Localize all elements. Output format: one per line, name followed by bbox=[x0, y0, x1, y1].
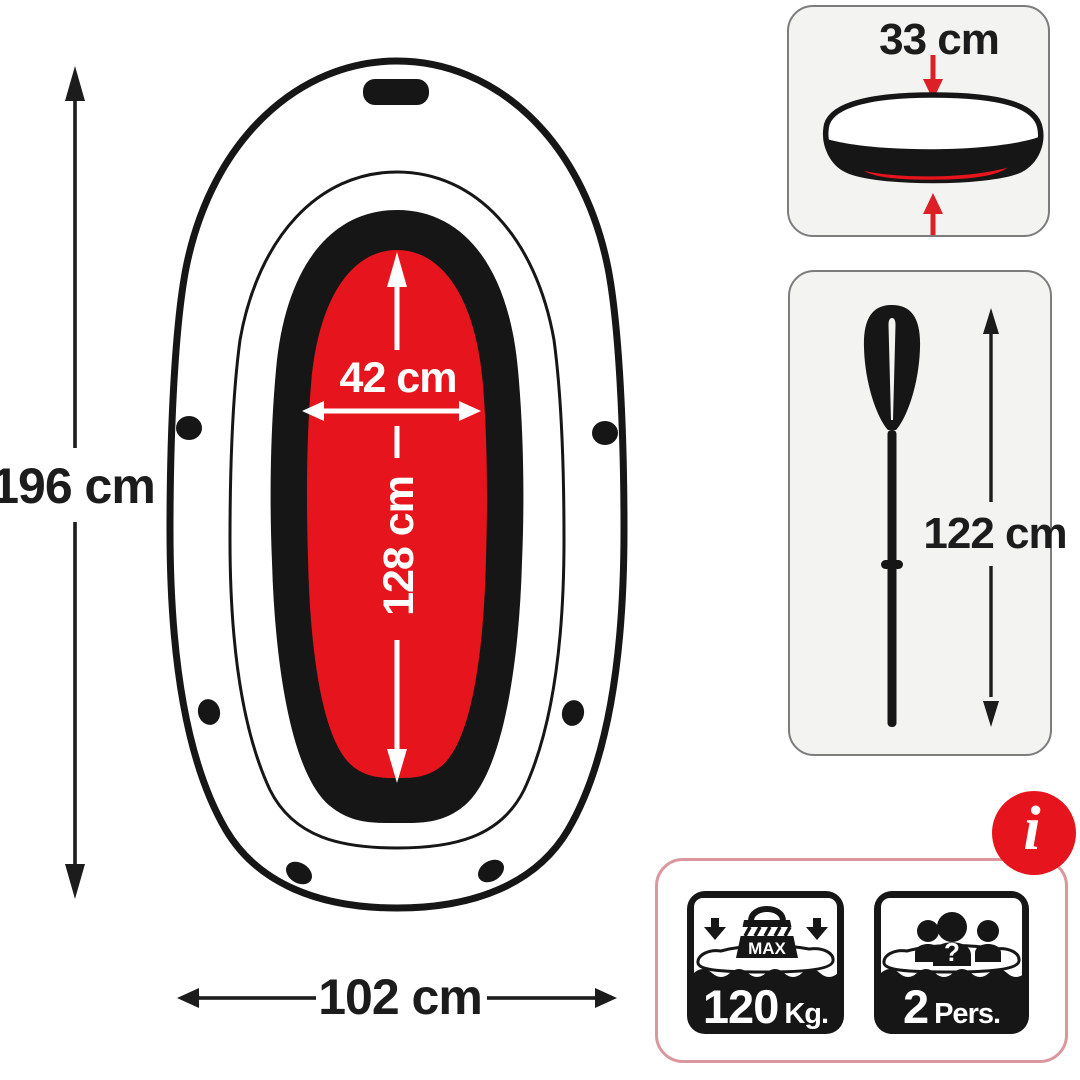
info-icon: i bbox=[1023, 798, 1040, 860]
max-weight-badge: MAX 120 Kg. bbox=[687, 891, 844, 1034]
capacity-unit: Pers. bbox=[934, 1000, 1000, 1029]
product-dimension-diagram: 196 cm 102 cm 42 cm 128 cm 33 cm bbox=[0, 0, 1080, 1080]
question-mark-label: ? bbox=[944, 937, 960, 967]
info-badge: i bbox=[992, 791, 1076, 875]
bow-handle bbox=[363, 79, 429, 105]
capacity-badge: ? 2 Pers. bbox=[874, 891, 1029, 1034]
side-view-panel: 33 cm bbox=[787, 5, 1050, 237]
capacity-text: 2 Pers. bbox=[874, 983, 1029, 1030]
max-weight-unit: Kg. bbox=[784, 1000, 828, 1029]
boat-length-label: 196 cm bbox=[0, 461, 158, 511]
cockpit-length-label: 128 cm bbox=[376, 466, 422, 626]
cockpit-width-label: 42 cm bbox=[318, 355, 478, 401]
oar-panel: 122 cm bbox=[788, 270, 1052, 756]
max-weight-value: 120 bbox=[703, 983, 778, 1030]
capacity-value: 2 bbox=[903, 983, 928, 1030]
boat-side-view bbox=[789, 7, 1048, 235]
max-label: MAX bbox=[748, 939, 786, 958]
red-arrow-up-icon bbox=[923, 193, 943, 235]
boat-width-label: 102 cm bbox=[315, 972, 485, 1022]
oar-length-label: 122 cm bbox=[905, 510, 1080, 558]
max-weight-text: 120 Kg. bbox=[687, 983, 844, 1030]
specs-panel: MAX 120 Kg. bbox=[655, 858, 1068, 1063]
